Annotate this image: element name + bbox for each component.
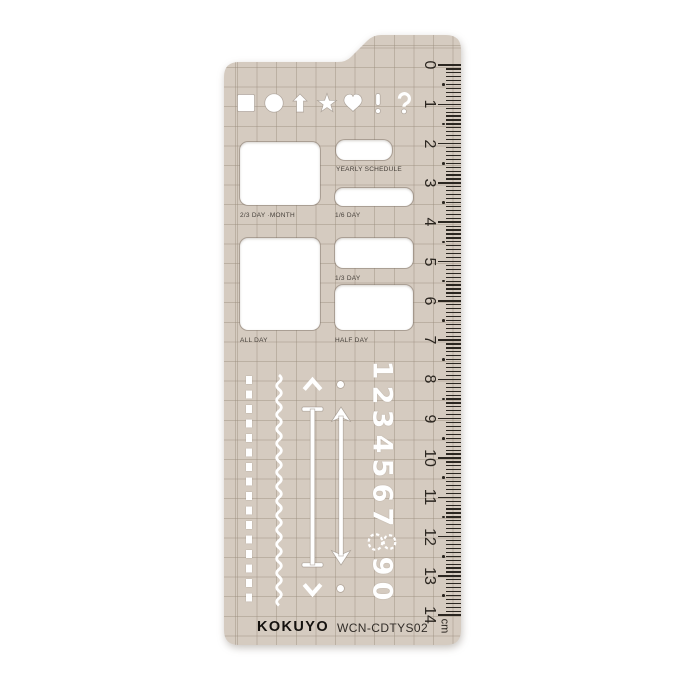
arrow-up-cutout xyxy=(293,94,307,112)
ruler-mm-tick xyxy=(446,147,461,148)
ruler-mm-tick xyxy=(446,473,461,474)
ruler-mm-tick xyxy=(446,206,461,207)
ruler-mm-tick xyxy=(446,375,461,376)
ruler-mm-tick xyxy=(446,277,461,278)
ruler-mm-tick xyxy=(446,524,461,525)
ruler-mm-tick xyxy=(446,155,461,156)
ruler-mm-tick xyxy=(446,249,461,250)
ruler-number: 13 xyxy=(421,567,437,585)
shape-row xyxy=(232,89,422,117)
ruler-mm-tick xyxy=(446,430,461,431)
ruler-mm-tick xyxy=(446,80,461,81)
ruler-number: 9 xyxy=(421,414,437,423)
ruler-mm-tick xyxy=(446,226,461,227)
ruler-mm-tick xyxy=(446,540,461,541)
ruler-number: 10 xyxy=(421,449,437,467)
ruler-cm-tick xyxy=(438,64,461,66)
chevron-up-cutout xyxy=(302,378,323,391)
ruler-mm-tick xyxy=(446,453,461,454)
model-number: WCN-CDTYS02 xyxy=(337,621,428,635)
ruler-half-dot xyxy=(442,437,445,440)
ruler-half-dot xyxy=(442,83,445,86)
ruler-number: 1 xyxy=(421,100,437,109)
ruler-number: 2 xyxy=(421,139,437,148)
ruler-mm-tick xyxy=(446,512,461,513)
ruler-number: 8 xyxy=(421,375,437,384)
ruler-mm-tick xyxy=(446,347,461,348)
ruler-mm-tick xyxy=(446,477,461,478)
stencil-digit: 9 xyxy=(369,557,396,576)
ruler-mm-tick xyxy=(446,88,461,89)
ruler-mm-tick xyxy=(446,520,461,521)
ruler-mm-tick xyxy=(446,273,461,274)
ruler-mm-tick xyxy=(446,288,461,289)
stencil-body: 2/3 DAY ·MONTH YEARLY SCHEDULE 1/6 DAY A… xyxy=(224,35,461,645)
chevron-down-cutout xyxy=(302,583,323,596)
dot-cutout-top xyxy=(337,381,344,388)
ruler-half-dot xyxy=(442,201,445,204)
ruler-number: 3 xyxy=(421,178,437,187)
ruler-mm-tick xyxy=(446,508,461,509)
ruler-mm-tick xyxy=(446,434,461,435)
ruler-mm-tick xyxy=(446,595,461,596)
ruler-mm-tick xyxy=(446,245,461,246)
ruler-mm-tick xyxy=(446,548,461,549)
ruler-mm-tick xyxy=(446,336,461,337)
square-cutout xyxy=(238,95,255,112)
ruler-mm-tick xyxy=(446,151,461,152)
one-third-day-label: 1/3 DAY xyxy=(335,275,360,282)
ruler-mm-tick xyxy=(446,414,461,415)
ruler-cm-tick xyxy=(438,143,461,145)
yearly-schedule-cutout xyxy=(336,140,392,160)
ruler-mm-tick xyxy=(446,320,461,321)
ruler-mm-tick xyxy=(446,76,461,77)
ruler-mm-tick xyxy=(446,265,461,266)
ruler-mm-tick xyxy=(446,505,461,506)
ruler-mm-tick xyxy=(446,371,461,372)
ruler-half-dot xyxy=(442,594,445,597)
ruler-mm-tick xyxy=(446,489,461,490)
dashed-line-cutout xyxy=(246,376,252,602)
ruler-number: 6 xyxy=(421,296,437,305)
ruler-mm-tick xyxy=(446,493,461,494)
ruler-mm-tick xyxy=(446,115,461,116)
ruler-cm-tick xyxy=(438,221,461,223)
ruler-mm-tick xyxy=(446,123,461,124)
one-sixth-day-cutout xyxy=(335,188,413,206)
ruler-mm-tick xyxy=(446,190,461,191)
ruler-mm-tick xyxy=(446,108,461,109)
ruler-number: 5 xyxy=(421,257,437,266)
ruler-mm-tick xyxy=(446,426,461,427)
ruler-mm-tick xyxy=(446,167,461,168)
stencil-digit: 3 xyxy=(369,410,396,429)
ruler-mm-tick xyxy=(446,465,461,466)
ruler-cm-tick xyxy=(438,457,461,459)
half-day-cutout xyxy=(335,285,413,330)
month-label: 2/3 DAY ·MONTH xyxy=(240,212,295,219)
ruler-mm-tick xyxy=(446,583,461,584)
ruler-mm-tick xyxy=(446,198,461,199)
ruler-mm-tick xyxy=(446,92,461,93)
ruler-mm-tick xyxy=(446,532,461,533)
ruler-mm-tick xyxy=(446,218,461,219)
ruler-mm-tick xyxy=(446,391,461,392)
ruler-half-dot xyxy=(442,319,445,322)
ruler-mm-tick xyxy=(446,398,461,399)
ruler-mm-tick xyxy=(446,171,461,172)
ruler-half-dot xyxy=(442,280,445,283)
ruler-mm-tick xyxy=(446,383,461,384)
ruler-mm-tick xyxy=(446,450,461,451)
ruler-mm-tick xyxy=(446,355,461,356)
ruler-mm-tick xyxy=(446,159,461,160)
ruler-mm-tick xyxy=(446,567,461,568)
dot-cutout-bottom xyxy=(337,585,344,592)
ruler-number: 11 xyxy=(421,489,437,506)
ruler-mm-tick xyxy=(446,112,461,113)
ruler-mm-tick xyxy=(446,186,461,187)
ruler-mm-tick xyxy=(446,571,461,572)
ruler-mm-tick xyxy=(446,178,461,179)
heart-cutout xyxy=(344,94,362,111)
ruler-cm-tick xyxy=(438,182,461,184)
ruler-mm-tick xyxy=(446,281,461,282)
ruler-mm-tick xyxy=(446,363,461,364)
ruler-mm-tick xyxy=(446,131,461,132)
ruler-mm-tick xyxy=(446,395,461,396)
ruler-mm-tick xyxy=(446,351,461,352)
brand-logo: KOKUYO xyxy=(257,619,329,635)
ruler-mm-tick xyxy=(446,96,461,97)
ruler-half-dot xyxy=(442,476,445,479)
ruler-mm-tick xyxy=(446,68,461,69)
stencil-digit: 2 xyxy=(369,385,396,404)
ruler-mm-tick xyxy=(446,214,461,215)
ruler-cm-tick xyxy=(438,536,461,538)
stencil-digit-eight xyxy=(367,531,397,553)
endcap-line-cutout xyxy=(302,407,323,567)
ruler-mm-tick xyxy=(446,343,461,344)
ruler-cm-tick xyxy=(438,300,461,302)
ruler-mm-tick xyxy=(446,304,461,305)
ruler-mm-tick xyxy=(446,237,461,238)
ruler-mm-tick xyxy=(446,446,461,447)
one-third-day-cutout xyxy=(335,238,413,268)
ruler-mm-tick xyxy=(446,332,461,333)
ruler-half-dot xyxy=(442,358,445,361)
star-cutout xyxy=(317,94,336,112)
ruler-half-dot xyxy=(442,555,445,558)
all-day-label: ALL DAY xyxy=(240,337,268,344)
ruler-mm-tick xyxy=(446,410,461,411)
ruler-mm-tick xyxy=(446,257,461,258)
ruler-mm-tick xyxy=(446,422,461,423)
wavy-line-path xyxy=(277,375,282,605)
ruler-half-dot xyxy=(442,241,445,244)
branding-row: KOKUYO WCN-CDTYS02 xyxy=(224,619,461,635)
ruler-mm-tick xyxy=(446,296,461,297)
ruler-mm-tick xyxy=(446,544,461,545)
ruler-cm-tick xyxy=(438,575,461,577)
stencil-digit: 1 xyxy=(369,361,396,380)
question-cutout xyxy=(399,94,409,114)
ruler-mm-tick xyxy=(446,556,461,557)
month-cutout xyxy=(240,142,320,205)
exclamation-cutout xyxy=(376,94,381,114)
ruler-mm-tick xyxy=(446,139,461,140)
ruler-mm-tick xyxy=(446,402,461,403)
ruler-cm-tick xyxy=(438,497,461,499)
ruler-mm-tick xyxy=(446,528,461,529)
stencil-digit: 0 xyxy=(369,581,396,600)
stencil-template-ruler: 2/3 DAY ·MONTH YEARLY SCHEDULE 1/6 DAY A… xyxy=(224,35,461,645)
ruler-mm-tick xyxy=(446,324,461,325)
ruler-mm-tick xyxy=(446,308,461,309)
ruler-mm-tick xyxy=(446,461,461,462)
ruler-cm-tick xyxy=(438,418,461,420)
stencil-digit: 5 xyxy=(369,459,396,478)
ruler-mm-tick xyxy=(446,599,461,600)
ruler-mm-tick xyxy=(446,312,461,313)
ruler-mm-tick xyxy=(446,84,461,85)
ruler-number: 0 xyxy=(421,61,437,70)
ruler-mm-tick xyxy=(446,119,461,120)
ruler-mm-tick xyxy=(446,163,461,164)
ruler-mm-tick xyxy=(446,587,461,588)
all-day-cutout xyxy=(240,238,320,330)
ruler-mm-tick xyxy=(446,406,461,407)
half-day-label: HALF DAY xyxy=(335,337,368,344)
double-arrow-cutout xyxy=(330,407,352,565)
ruler-mm-tick xyxy=(446,328,461,329)
ruler-mm-tick xyxy=(446,485,461,486)
ruler-half-dot xyxy=(442,516,445,519)
ruler-mm-tick xyxy=(446,72,461,73)
ruler-cm-tick xyxy=(438,339,461,341)
ruler-half-dot xyxy=(442,123,445,126)
ruler-mm-tick xyxy=(446,564,461,565)
ruler-number: 4 xyxy=(421,218,437,227)
stencil-digit: 4 xyxy=(369,434,396,453)
ruler-mm-tick xyxy=(446,579,461,580)
ruler-mm-tick xyxy=(446,135,461,136)
ruler-mm-tick xyxy=(446,174,461,175)
ruler-cm-tick xyxy=(438,379,461,381)
ruler-number: 12 xyxy=(421,528,437,546)
ruler-cm-tick xyxy=(438,261,461,263)
ruler-mm-tick xyxy=(446,438,461,439)
ruler-mm-tick xyxy=(446,229,461,230)
ruler-mm-tick xyxy=(446,560,461,561)
ruler-mm-tick xyxy=(446,442,461,443)
ruler-half-dot xyxy=(442,162,445,165)
ruler-mm-tick xyxy=(446,210,461,211)
ruler-mm-tick xyxy=(446,269,461,270)
ruler-mm-tick xyxy=(446,501,461,502)
ruler-mm-tick xyxy=(446,367,461,368)
ruler-mm-tick xyxy=(446,202,461,203)
ruler-mm-tick xyxy=(446,469,461,470)
one-sixth-day-label: 1/6 DAY xyxy=(335,212,360,219)
ruler-number: 7 xyxy=(421,336,437,345)
ruler-half-dot xyxy=(442,398,445,401)
ruler-mm-tick xyxy=(446,100,461,101)
ruler-mm-tick xyxy=(446,127,461,128)
circle-cutout xyxy=(265,94,283,112)
ruler-mm-tick xyxy=(446,481,461,482)
ruler-mm-tick xyxy=(446,292,461,293)
stencil-digit: 6 xyxy=(369,483,396,502)
ruler-mm-tick xyxy=(446,241,461,242)
ruler-mm-tick xyxy=(446,591,461,592)
ruler-mm-tick xyxy=(446,603,461,604)
yearly-schedule-label: YEARLY SCHEDULE xyxy=(336,166,402,173)
ruler-mm-tick xyxy=(446,359,461,360)
ruler-mm-tick xyxy=(446,316,461,317)
ruler-mm-tick xyxy=(446,607,461,608)
ruler-cm-tick xyxy=(438,104,461,106)
wavy-line-cutout xyxy=(272,375,286,606)
ruler-mm-tick xyxy=(446,194,461,195)
ruler-mm-tick xyxy=(446,253,461,254)
ruler-cm-tick xyxy=(438,614,461,616)
ruler-mm-tick xyxy=(446,552,461,553)
ruler-mm-tick xyxy=(446,611,461,612)
stencil-digit: 7 xyxy=(369,508,396,527)
ruler-mm-tick xyxy=(446,284,461,285)
ruler-mm-tick xyxy=(446,387,461,388)
ruler-mm-tick xyxy=(446,516,461,517)
ruler-mm-tick xyxy=(446,233,461,234)
